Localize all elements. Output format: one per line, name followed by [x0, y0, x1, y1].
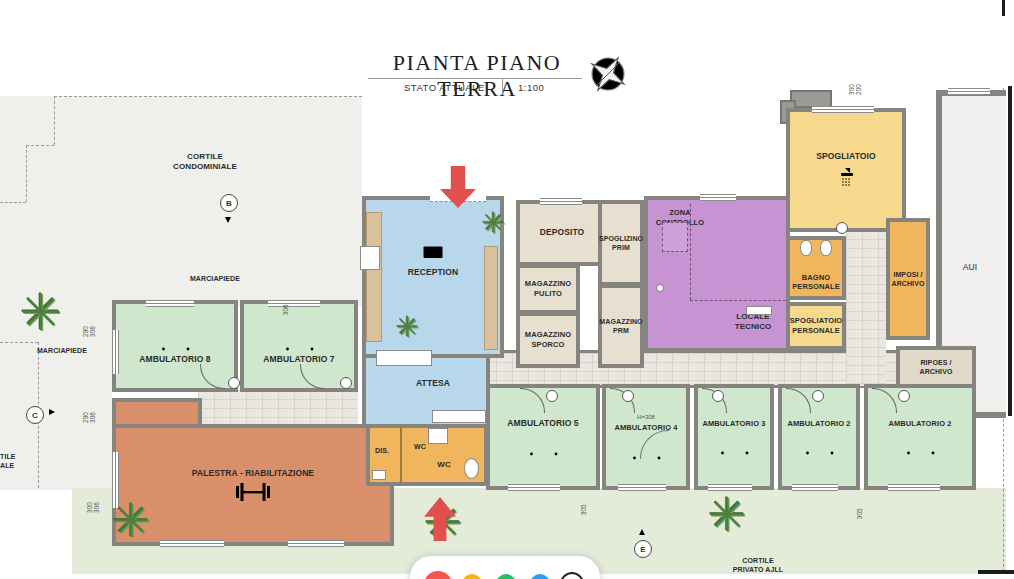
room-imposi-archivio-label: IMPOSI / ARCHIVO [892, 270, 925, 288]
cortile-condominiale-label: CORTILE CONDOMINIALE [150, 152, 260, 173]
boundary-dashed-line [26, 145, 27, 202]
corridor-staff [846, 230, 886, 386]
exam-bed-icon [712, 431, 756, 455]
section-marker-c-letter: C [32, 411, 38, 420]
section-marker-b: B [220, 194, 238, 212]
window [146, 300, 194, 307]
height-note: H=308 [637, 414, 655, 420]
cortile-privato-label: CORTILE PRIVATO AJLL [706, 556, 810, 574]
computer-monitor-icon [421, 244, 445, 264]
room-ambulatorio-5-label: AMBULATORIO 5 [507, 418, 578, 429]
window [948, 88, 990, 95]
room-palestra-label: PALESTRA - RIABILITAZIONE [192, 468, 314, 479]
attesa-bench [376, 350, 432, 366]
room-locale-tecnico-label: LOCALE TECNICO [718, 312, 788, 333]
boundary-dashed-line [0, 202, 26, 203]
room-attesa-label: ATTESA [398, 378, 468, 389]
room-wc-dis-label: DIS. [370, 446, 394, 455]
door-marker [228, 377, 240, 389]
palette-red-dot[interactable] [424, 571, 452, 579]
boundary-dashed-line [0, 342, 38, 343]
door-marker [546, 390, 558, 402]
level-symbol [216, 214, 240, 226]
room-wc-small-label: WC [410, 442, 430, 451]
reception-counter [360, 246, 380, 270]
sink-icon [800, 240, 812, 256]
door-marker [812, 390, 824, 402]
color-palette-toolbar[interactable] [410, 556, 600, 579]
door-marker [340, 377, 352, 389]
level-symbol [630, 526, 654, 538]
plant-icon [396, 314, 419, 342]
door-marker [622, 390, 634, 402]
room-wc-main-label: WC [432, 460, 456, 470]
door-marker [836, 222, 848, 234]
room-spoglizino-prim-label: SPOGLIZINO PRIM [599, 234, 643, 252]
room-ripost-archivio-label: RIPOES / ARCHIVO [920, 358, 953, 376]
title-scale: 1:100 [518, 82, 544, 93]
zona-dashed-partition [690, 300, 786, 301]
palette-white-dot[interactable] [560, 572, 584, 579]
room-deposito: DEPOSITO [516, 200, 608, 266]
page-edge-mark [1002, 0, 1005, 16]
section-marker-b-letter: B [226, 199, 232, 208]
palette-yellow-dot[interactable] [462, 574, 482, 579]
room-magazzino-prm-label: MAGAZZINO PRM [599, 317, 642, 335]
level-symbol [46, 400, 58, 424]
window [700, 194, 736, 201]
section-marker-e-letter: E [640, 545, 645, 554]
dimension-label: 300 200 [848, 84, 863, 95]
wc-partition [400, 426, 402, 484]
window [508, 484, 560, 491]
zona-dashed-partition [690, 204, 691, 300]
room-spoglizino-prim: SPOGLIZINO PRIM [598, 200, 644, 286]
title-status: STATO ATTUALE [404, 82, 485, 93]
room-aui-label: AUI [948, 262, 992, 273]
room-magazzino-pulito-label: MAGAZZINO PULITO [525, 279, 571, 299]
tree-icon [112, 498, 151, 544]
room-imposi-archivio: IMPOSI / ARCHIVO [886, 218, 930, 340]
room-bagno-personale: BAGNO PERSONALE [786, 236, 846, 300]
exam-bed-icon [153, 327, 197, 351]
marciapiede-left-label: MARCIAPIEDE [20, 346, 104, 355]
room-bagno-personale-label: BAGNO PERSONALE [792, 273, 840, 293]
room-reception-label: RECEPTION [408, 267, 459, 278]
corridor-palestra-entry [198, 390, 358, 424]
boundary-dashed-line [54, 96, 362, 97]
title-divider [368, 78, 582, 79]
page-edge-mark [978, 570, 1014, 574]
tree-icon [708, 492, 747, 538]
vent-unit [746, 306, 772, 315]
dimension-label: 290 306 [82, 326, 97, 337]
dimension-label: 300 306 [86, 502, 101, 513]
tree-icon [20, 288, 62, 338]
window [112, 330, 119, 374]
room-spogliatoio: SPOGLIATOIO [786, 108, 906, 232]
sink-icon [820, 240, 832, 256]
room-spogliatoio-personale-label: SPOGLIATOIO PERSONALE [790, 316, 843, 336]
window [618, 484, 666, 491]
room-ambulatorio-3-label: AMBULATORIO 3 [702, 419, 765, 429]
door-marker [898, 390, 910, 402]
toilet-icon [464, 458, 479, 479]
window [792, 484, 838, 491]
shower-icon [835, 165, 857, 189]
subtitle-divider [502, 79, 503, 94]
room-ambulatorio-5: AMBULATORIO 5 [486, 384, 600, 490]
reception-desk [484, 246, 498, 350]
dumbbell-icon [231, 482, 275, 502]
room-ripost-archivio: RIPOES / ARCHIVO [896, 346, 976, 388]
dimension-label: 306 [282, 304, 289, 315]
palette-green-dot[interactable] [496, 574, 516, 579]
page-title: PIANTA PIANO TERRA [352, 50, 602, 102]
window [812, 106, 874, 113]
section-marker-c: C [26, 406, 44, 424]
section-marker-e: E [634, 540, 652, 558]
window [268, 300, 320, 307]
dimension-label: 305 [580, 504, 587, 515]
dimension-label: 290 306 [82, 412, 97, 423]
exam-bed-icon [898, 431, 942, 455]
boundary-dashed-line [54, 96, 55, 145]
exam-bed-icon [521, 432, 565, 456]
exam-bed-icon [277, 327, 321, 351]
bench [432, 410, 486, 423]
room-magazzino-sporco-label: MAGAZZINO SPORCO [525, 330, 571, 350]
reception-desk [366, 212, 382, 342]
room-ambulatorio-2b-label: AMBULATORIO 2 [888, 419, 951, 429]
zona-equipment-dashed [662, 222, 688, 252]
page-edge-mark [1008, 86, 1012, 416]
window [888, 484, 940, 491]
window [160, 540, 224, 547]
plant-icon [482, 210, 505, 238]
exam-bed-icon [797, 431, 841, 455]
room-deposito-label: DEPOSITO [540, 227, 585, 238]
door-marker [712, 390, 724, 402]
floor-plan-canvas: AUI SPOGLIATOIO BAGNO PERSONALE SPOGLIAT… [0, 0, 1014, 579]
room-magazzino-pulito: MAGAZZINO PULITO [516, 264, 580, 314]
marciapiede-top-label: MARCIAPIEDE [170, 274, 260, 283]
sink-icon [428, 428, 448, 444]
window [288, 540, 344, 547]
room-magazzino-prm: MAGAZZINO PRM [598, 284, 644, 368]
room-magazzino-sporco: MAGAZZINO SPORCO [516, 312, 580, 368]
dimension-label: 305 [856, 508, 863, 519]
window [540, 198, 582, 205]
sink-icon [372, 470, 386, 480]
room-palestra: PALESTRA - RIABILITAZIONE [112, 424, 394, 546]
compass-icon [586, 52, 630, 96]
room-spogliatoio-label: SPOGLIATOIO [816, 151, 875, 162]
room-spogliatoio-personale: SPOGLIATOIO PERSONALE [786, 302, 846, 350]
room-ambulatorio-7: AMBULATORIO 7 [240, 300, 358, 392]
room-ambulatorio-2a-label: AMBULATORIO 2 [787, 419, 850, 429]
zona-door-knob [656, 284, 664, 292]
cortile-partial-label: TILE ALE [0, 452, 26, 470]
palette-blue-dot[interactable] [530, 574, 550, 579]
boundary-dashed-line [26, 145, 54, 146]
